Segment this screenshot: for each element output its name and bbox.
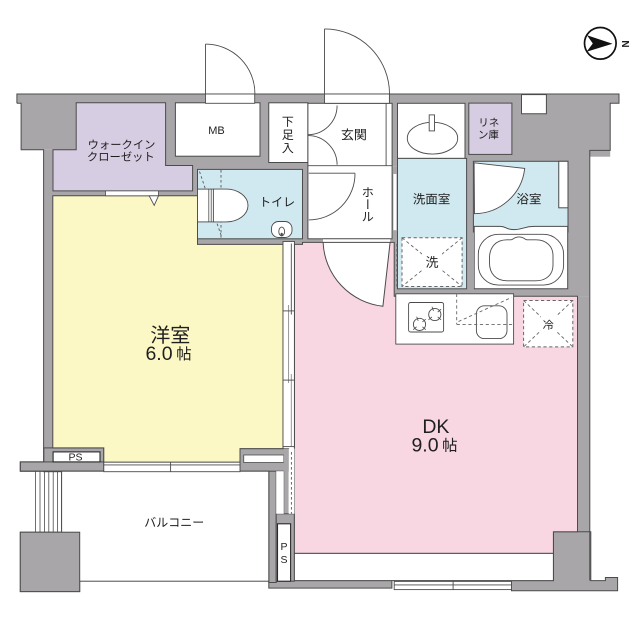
svg-text:9.0: 9.0 — [411, 435, 438, 457]
svg-text:S: S — [280, 554, 287, 566]
svg-text:MB: MB — [208, 125, 225, 137]
svg-text:6.0: 6.0 — [145, 343, 172, 365]
svg-text:PS: PS — [68, 451, 82, 463]
svg-text:P: P — [280, 541, 287, 553]
svg-text:N: N — [619, 40, 630, 47]
